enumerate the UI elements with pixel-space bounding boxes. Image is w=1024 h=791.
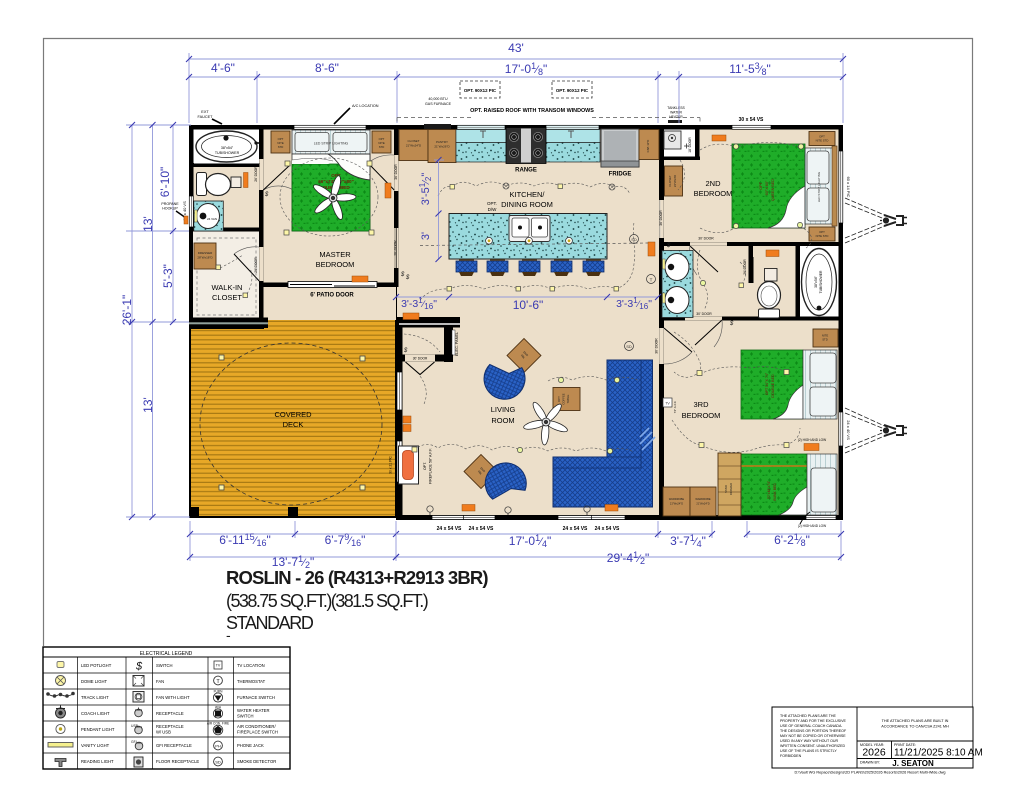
- svg-text:26' DOOR: 26' DOOR: [254, 166, 258, 182]
- svg-text:BEDROOM: BEDROOM: [316, 260, 355, 269]
- svg-text:(2) HIGH AND LOW: (2) HIGH AND LOW: [798, 524, 826, 528]
- svg-text:6'-10": 6'-10": [158, 167, 172, 198]
- svg-text:3RD: 3RD: [693, 400, 709, 409]
- svg-text:ROOM: ROOM: [491, 416, 514, 425]
- svg-text:J. SEATON: J. SEATON: [892, 759, 934, 768]
- svg-text:TABLE: TABLE: [566, 395, 570, 404]
- svg-text:OPT: OPT: [759, 181, 763, 189]
- svg-text:30' DOOR: 30' DOOR: [413, 357, 428, 361]
- svg-text:(2) HIGH AND LOW: (2) HIGH AND LOW: [798, 438, 826, 442]
- svg-text:$: $: [264, 192, 269, 198]
- svg-text:ELEC. PANEL: ELEC. PANEL: [455, 332, 459, 356]
- svg-text:THE ATTACHED PLANS ARE BUILT I: THE ATTACHED PLANS ARE BUILT IN: [882, 719, 949, 723]
- svg-text:30 x 21 PIC: 30 x 21 PIC: [389, 456, 393, 474]
- svg-text:KITCHEN/: KITCHEN/: [509, 190, 545, 199]
- svg-text:TV: TV: [216, 664, 221, 668]
- svg-text:PENDANT LIGHT: PENDANT LIGHT: [81, 727, 115, 732]
- svg-text:TV LOCATION: TV LOCATION: [237, 663, 265, 668]
- svg-text:WARDROBE: WARDROBE: [695, 497, 710, 501]
- svg-text:STANDARD: STANDARD: [226, 613, 314, 633]
- svg-text:DECK: DECK: [283, 420, 304, 429]
- svg-text:FAN WITH LIGHT: FAN WITH LIGHT: [156, 695, 190, 700]
- svg-text:40,000 BTU: 40,000 BTU: [428, 97, 448, 101]
- svg-text:ROSLIN - 26 (R4313+R2913 3BR): ROSLIN - 26 (R4313+R2913 3BR): [226, 567, 488, 588]
- svg-text:38"x54": 38"x54": [814, 275, 818, 287]
- svg-text:18' DOOR: 18' DOOR: [688, 137, 692, 153]
- svg-text:RECEPTACLE: RECEPTACLE: [156, 711, 184, 716]
- svg-text:FIREPLACE 58" A.F.F.: FIREPLACE 58" A.F.F.: [429, 448, 433, 484]
- svg-text:(538.75 SQ.FT.)(381.5 SQ.FT.): (538.75 SQ.FT.)(381.5 SQ.FT.): [226, 591, 428, 611]
- svg-text:-: -: [226, 627, 231, 643]
- svg-text:LIVING: LIVING: [491, 405, 516, 414]
- svg-text:60"X 80": 60"X 80": [765, 180, 769, 195]
- svg-text:SWITCH: SWITCH: [156, 663, 173, 668]
- svg-text:USED IN ANY WAY WITHOUT OUR: USED IN ANY WAY WITHOUT OUR: [780, 739, 839, 743]
- svg-text:30 x 54 VS: 30 x 54 VS: [739, 117, 764, 123]
- svg-text:FAN: FAN: [156, 679, 164, 684]
- svg-text:30' DOOR: 30' DOOR: [696, 312, 712, 316]
- svg-text:WARDROBE: WARDROBE: [669, 497, 684, 501]
- svg-text:COFFEE: COFFEE: [562, 393, 566, 404]
- svg-text:PROPERTY AND FOR THE EXCLUSIVE: PROPERTY AND FOR THE EXCLUSIVE: [780, 719, 847, 723]
- svg-text:LED STRIP LIGHTING: LED STRIP LIGHTING: [314, 142, 349, 146]
- svg-text:OPT.: OPT.: [487, 201, 497, 206]
- svg-text:EXT: EXT: [201, 110, 209, 114]
- svg-text:74" A.F.F.: 74" A.F.F.: [673, 401, 677, 414]
- svg-text:COVERED: COVERED: [274, 410, 312, 419]
- svg-text:$: $: [729, 321, 734, 327]
- svg-text:DOME LIGHT: DOME LIGHT: [81, 679, 107, 684]
- svg-text:60 x 14 PIC: 60 x 14 PIC: [846, 177, 851, 198]
- svg-text:NITE STD: NITE STD: [816, 139, 829, 143]
- svg-text:OPT: OPT: [557, 396, 561, 402]
- svg-text:GAS FURNACE: GAS FURNACE: [425, 102, 452, 106]
- svg-text:BEDROOM: BEDROOM: [682, 411, 721, 420]
- svg-text:OPT 54"X 74": OPT 54"X 74": [765, 372, 769, 395]
- svg-text:LED STRIP LIGHTING: LED STRIP LIGHTING: [817, 171, 821, 202]
- svg-text:COACH LIGHT: COACH LIGHT: [81, 711, 110, 716]
- svg-text:CLOSET: CLOSET: [212, 293, 242, 302]
- svg-text:D/W: D/W: [488, 207, 498, 212]
- svg-text:70"x48"x74": 70"x48"x74": [767, 480, 771, 499]
- svg-text:24 x 54 VS: 24 x 54 VS: [437, 526, 462, 532]
- svg-text:USE OF GENERAL COACH CANADA.: USE OF GENERAL COACH CANADA.: [780, 724, 842, 728]
- svg-text:FLOOR RECEPTACLE: FLOOR RECEPTACLE: [156, 759, 199, 764]
- svg-text:HOOKUP: HOOKUP: [162, 207, 178, 211]
- svg-text:DOUBLE BED: DOUBLE BED: [771, 374, 775, 398]
- svg-text:24"Wx4'D: 24"Wx4'D: [673, 175, 677, 187]
- svg-text:26'-1": 26'-1": [120, 295, 134, 326]
- svg-text:PROPANE: PROPANE: [161, 202, 179, 206]
- svg-text:BUNK BED: BUNK BED: [773, 483, 777, 501]
- svg-text:OPT. 90X12 PIC: OPT. 90X12 PIC: [464, 88, 497, 93]
- svg-text:RECEPTACLE: RECEPTACLE: [156, 724, 184, 729]
- svg-text:21"Wx24"D: 21"Wx24"D: [406, 144, 422, 148]
- svg-text:28"Wx18"D: 28"Wx18"D: [197, 256, 213, 260]
- svg-text:SWITCH: SWITCH: [237, 714, 254, 719]
- svg-text:TUB/SHOWER: TUB/SHOWER: [215, 151, 240, 155]
- svg-text:USB: USB: [131, 724, 139, 728]
- svg-text:21"Wx26"D: 21"Wx26"D: [434, 145, 450, 149]
- svg-text:36' DOOR: 36' DOOR: [394, 164, 398, 180]
- svg-text:6' PATIO DOOR: 6' PATIO DOOR: [310, 293, 354, 299]
- svg-text:WATER HEATER: WATER HEATER: [237, 708, 270, 713]
- svg-text:NITE STD: NITE STD: [816, 234, 829, 238]
- svg-text:TUB/SHOWER: TUB/SHOWER: [819, 270, 823, 294]
- svg-text:SD: SD: [215, 760, 221, 765]
- svg-text:24 x 54 VS: 24 x 54 VS: [595, 526, 620, 532]
- svg-text:USE OF THE PLANS IS STRICTLY: USE OF THE PLANS IS STRICTLY: [780, 749, 837, 753]
- svg-text:FAUCET: FAUCET: [198, 115, 214, 119]
- svg-text:THE ATTACHED PLANS ARE THE: THE ATTACHED PLANS ARE THE: [780, 714, 837, 718]
- svg-text:CLOSET: CLOSET: [668, 175, 672, 186]
- svg-text:13': 13': [141, 397, 155, 413]
- svg-text:21"Wx24"D: 21"Wx24"D: [696, 502, 709, 506]
- svg-text:5'-3": 5'-3": [161, 264, 175, 288]
- svg-text:READING LIGHT: READING LIGHT: [81, 759, 114, 764]
- svg-text:10'-6": 10'-6": [513, 298, 544, 312]
- svg-text:21"Wx24"D: 21"Wx24"D: [670, 502, 683, 506]
- svg-text:24 x 40 VS: 24 x 40 VS: [846, 420, 851, 440]
- svg-text:FURNACE SWITCH: FURNACE SWITCH: [237, 695, 275, 700]
- svg-text:ACCORDANCE TO CAN/CSA Z241 MH: ACCORDANCE TO CAN/CSA Z241 MH: [881, 725, 949, 729]
- svg-text:43': 43': [508, 41, 524, 55]
- svg-text:26' DOOR: 26' DOOR: [394, 240, 398, 256]
- svg-text:PRINT DATE:: PRINT DATE:: [894, 743, 916, 747]
- svg-text:QUEEN BED: QUEEN BED: [771, 179, 775, 202]
- svg-text:38"x54": 38"x54": [221, 146, 234, 150]
- svg-text:26' DOOR: 26' DOOR: [254, 257, 258, 273]
- svg-text:STAIR: STAIR: [724, 485, 728, 493]
- svg-text:FIREPLACE SWITCH: FIREPLACE SWITCH: [237, 730, 278, 735]
- svg-text:$: $: [403, 348, 408, 354]
- svg-text:D:\Vault WG Repace\Designs\2D: D:\Vault WG Repace\Designs\2D PLANS\2025…: [794, 771, 945, 775]
- svg-text:SD: SD: [626, 344, 632, 349]
- svg-text:$: $: [666, 243, 671, 249]
- svg-text:WALK-IN: WALK-IN: [212, 283, 243, 292]
- svg-text:24 x 54 VS: 24 x 54 VS: [469, 526, 494, 532]
- svg-text:2026: 2026: [862, 747, 886, 759]
- svg-text:A/C LOCATION: A/C LOCATION: [352, 104, 379, 108]
- svg-text:CAB 12"D: CAB 12"D: [646, 140, 650, 153]
- svg-text:BEDROOM: BEDROOM: [694, 189, 733, 198]
- svg-text:THERMOSTAT: THERMOSTAT: [237, 679, 266, 684]
- svg-text:HEATER: HEATER: [669, 115, 683, 119]
- svg-text:PH: PH: [215, 744, 221, 749]
- svg-text:DRAWER: DRAWER: [729, 483, 733, 495]
- svg-text:3': 3': [420, 232, 432, 240]
- svg-text:ELECTRICAL LEGEND: ELECTRICAL LEGEND: [140, 651, 193, 657]
- svg-text:SD: SD: [631, 237, 637, 242]
- svg-text:$: $: [400, 272, 405, 278]
- svg-text:DRAWN BY:: DRAWN BY:: [860, 761, 880, 765]
- svg-text:VANITY LIGHT: VANITY LIGHT: [81, 743, 110, 748]
- svg-text:13': 13': [141, 216, 155, 232]
- svg-text:OPT. 90X12 PIC: OPT. 90X12 PIC: [556, 88, 589, 93]
- svg-text:GFI: GFI: [131, 740, 137, 744]
- svg-text:AIR CONDITIONER/: AIR CONDITIONER/: [237, 724, 276, 729]
- svg-text:TV: TV: [665, 402, 670, 406]
- svg-text:36' DOOR: 36' DOOR: [655, 338, 659, 354]
- svg-text:4'-6": 4'-6": [211, 61, 235, 75]
- svg-text:MAY NOT BE COPIED OR OTHERWISE: MAY NOT BE COPIED OR OTHERWISE: [780, 734, 846, 738]
- svg-text:OPT. RAISED ROOF WITH TRANSOM: OPT. RAISED ROOF WITH TRANSOM WINDOWS: [470, 108, 594, 114]
- svg-text:RANGE: RANGE: [515, 168, 537, 174]
- svg-text:THE DESIGNS OR PORTION THEREOF: THE DESIGNS OR PORTION THEREOF: [780, 729, 847, 733]
- svg-text:WATER: WATER: [670, 111, 682, 115]
- svg-text:FRIDGE: FRIDGE: [609, 172, 632, 178]
- svg-text:$: $: [405, 275, 410, 281]
- svg-text:T: T: [650, 278, 653, 283]
- svg-text:SMOKE DETECTOR: SMOKE DETECTOR: [237, 759, 276, 764]
- svg-text:$: $: [135, 661, 143, 673]
- svg-text:TRACK LIGHT: TRACK LIGHT: [81, 695, 109, 700]
- svg-text:CLOSET: CLOSET: [407, 139, 419, 143]
- svg-text:OPT.: OPT.: [423, 462, 427, 470]
- svg-text:GFI RECEPTACLE: GFI RECEPTACLE: [156, 743, 192, 748]
- svg-text:8'-6": 8'-6": [315, 61, 339, 75]
- svg-text:LED POTLIGHT: LED POTLIGHT: [81, 663, 112, 668]
- svg-text:3'-51⁄2": 3'-51⁄2": [418, 173, 433, 206]
- svg-text:DINING ROOM: DINING ROOM: [501, 200, 553, 209]
- svg-text:11/21/2025 8:10 AM: 11/21/2025 8:10 AM: [894, 748, 983, 759]
- svg-text:36' DOOR: 36' DOOR: [659, 210, 663, 226]
- svg-text:WRITTEN CONSENT. UNAUTHORIZED: WRITTEN CONSENT. UNAUTHORIZED: [780, 744, 845, 748]
- svg-text:DRESSER: DRESSER: [198, 251, 213, 255]
- svg-text:W/ USB: W/ USB: [156, 730, 171, 735]
- svg-text:MASTER: MASTER: [319, 250, 351, 259]
- svg-text:2ND: 2ND: [705, 179, 721, 188]
- svg-text:STD: STD: [379, 145, 385, 149]
- svg-text:24 x 54 VS: 24 x 54 VS: [563, 526, 588, 532]
- svg-text:TANKLESS: TANKLESS: [667, 106, 685, 110]
- svg-text:24 VAN: 24 VAN: [207, 217, 217, 221]
- svg-text:30' DOOR: 30' DOOR: [698, 237, 714, 241]
- svg-text:PANTRY: PANTRY: [436, 140, 448, 144]
- svg-text:FORBIDDEN: FORBIDDEN: [780, 754, 802, 758]
- svg-text:PHONE JACK: PHONE JACK: [237, 743, 264, 748]
- svg-text:STD: STD: [822, 338, 828, 342]
- svg-text:STD: STD: [278, 145, 284, 149]
